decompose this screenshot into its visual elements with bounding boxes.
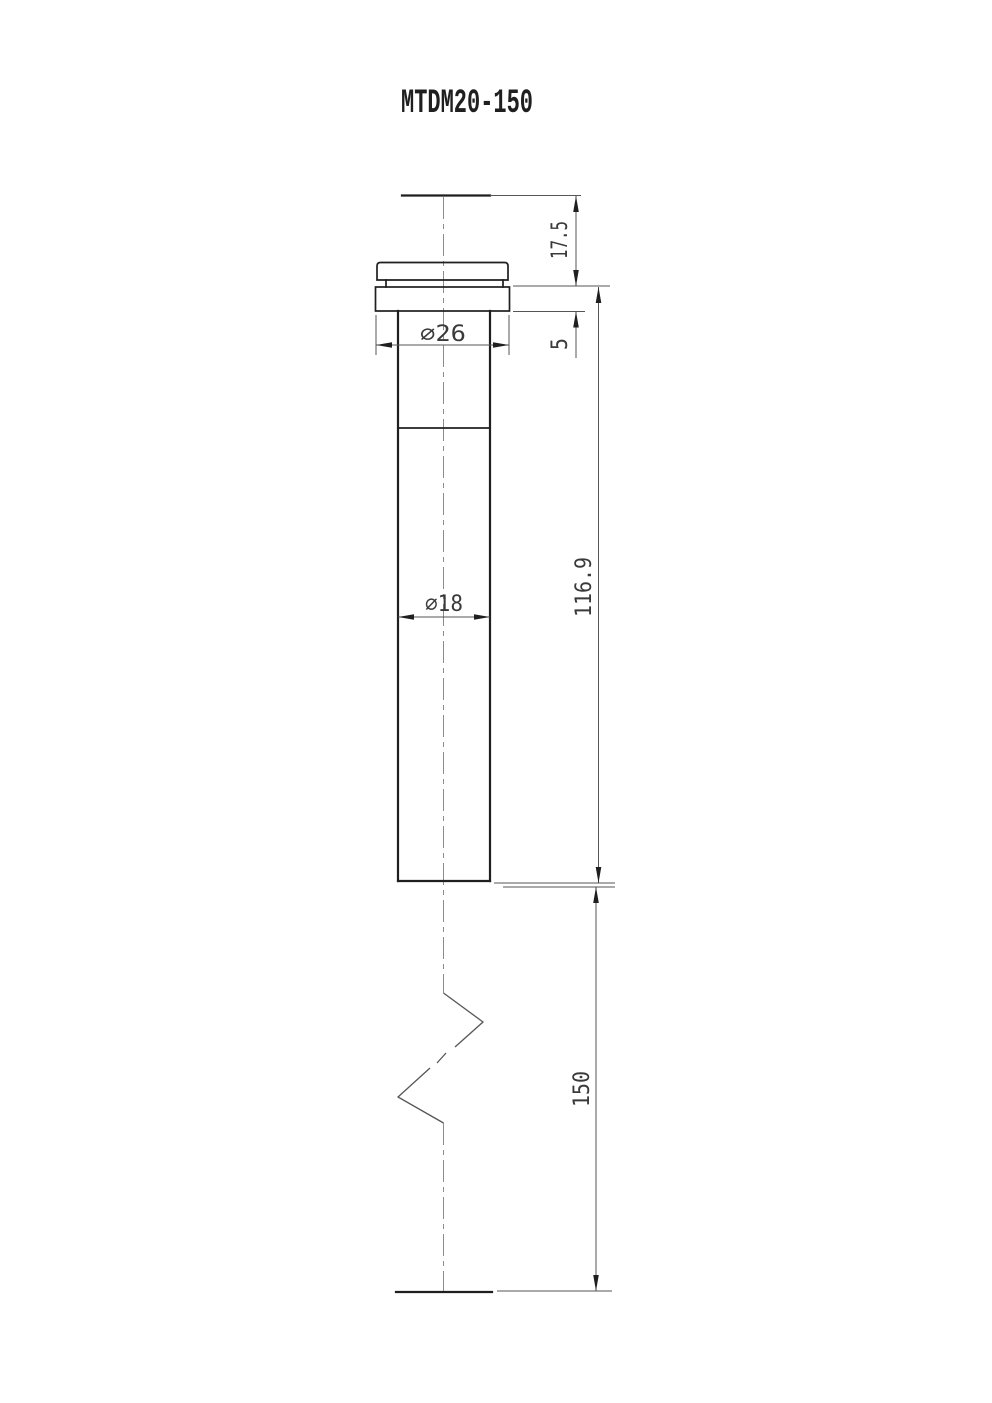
break-symbol <box>398 993 483 1123</box>
dim-upper-length-value: 116.9 <box>572 557 597 617</box>
arrow-right-icon <box>493 342 509 348</box>
arrow-down-icon <box>593 1275 599 1291</box>
arrow-left-icon <box>376 342 392 348</box>
dim-head-height: 17.5 <box>548 196 579 286</box>
arrow-up-icon <box>573 312 579 328</box>
dim-flange-thickness: 5 <box>548 312 579 359</box>
dim-flange-thickness-value: 5 <box>548 338 573 350</box>
flange-outline <box>376 287 510 311</box>
dim-shaft-diameter-value: ∅18 <box>425 592 463 617</box>
dim-insertion-length-value: 150 <box>570 1071 595 1107</box>
arrow-up-icon <box>573 196 579 212</box>
extension-lines <box>376 196 615 1292</box>
drawing-title: MTDM20-150 <box>401 85 533 123</box>
arrow-down-icon <box>573 270 579 286</box>
dim-upper-length: 116.9 <box>572 287 601 883</box>
dim-head-height-value: 17.5 <box>548 221 573 259</box>
arrow-down-icon <box>596 867 602 883</box>
arrow-up-icon <box>596 287 602 303</box>
arrow-up-icon <box>593 887 599 903</box>
break-line-lower <box>398 1068 444 1123</box>
dim-shaft-diameter: ∅18 <box>398 592 490 620</box>
dim-insertion-length: 150 <box>570 887 599 1291</box>
drawing-sheet: MTDM20-150 <box>0 0 992 1403</box>
cap-outline <box>377 263 508 281</box>
arrow-right-icon <box>474 614 490 620</box>
break-line-middle-dash <box>437 1053 446 1063</box>
part-outline <box>376 196 510 1293</box>
dim-flange-diameter-value: ∅26 <box>420 322 466 347</box>
arrow-left-icon <box>398 614 414 620</box>
break-line-upper <box>444 993 484 1047</box>
technical-drawing: MTDM20-150 <box>0 0 992 1403</box>
